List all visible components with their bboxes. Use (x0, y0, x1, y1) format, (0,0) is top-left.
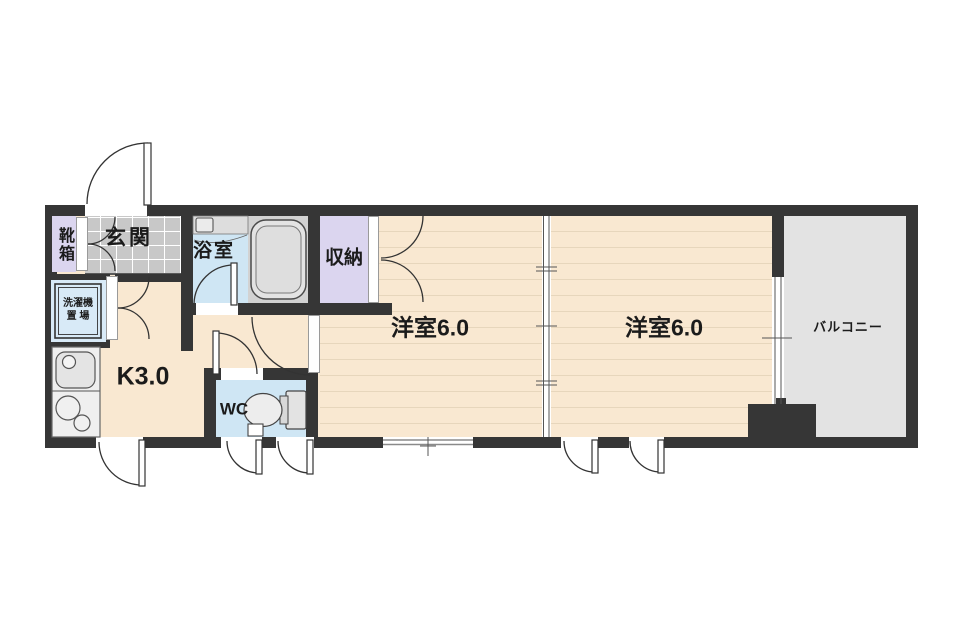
shoebox-label: 靴箱 (56, 227, 72, 263)
kitchen-label: K3.0 (117, 365, 170, 390)
balcony-label: バルコニー (813, 321, 883, 334)
wc-door-opening (221, 368, 263, 380)
wc-right-wall (306, 368, 318, 448)
bathroom-closet-wall (308, 216, 320, 315)
rooms-partition (542, 216, 551, 437)
genkan-label: 玄関 (105, 228, 153, 249)
outer-wall-right (906, 205, 918, 448)
balcony-window (772, 277, 784, 404)
balcony-window-frame-end (776, 398, 786, 406)
wc-label: WC (220, 401, 248, 418)
shoebox-door (76, 217, 88, 271)
closet-doors (368, 216, 379, 303)
balcony-pillar (748, 404, 816, 448)
floor-plan: 靴箱 玄関 洗濯機 置 場 浴室 収納 K3.0 WC 洋室6.0 洋室6.0 … (0, 0, 960, 629)
room1-label: 洋室6.0 (391, 317, 469, 340)
entrance-door (87, 143, 151, 205)
balcony-upper-wall (772, 216, 784, 277)
kitchen-room1-door (308, 315, 320, 373)
laundry-door (106, 276, 118, 340)
laundry-label: 洗濯機 置 場 (63, 297, 93, 323)
bathroom-left-wall (181, 205, 193, 351)
wc-bottom-opening-a (221, 437, 262, 448)
room2-label: 洋室6.0 (625, 317, 703, 340)
closet-label: 収納 (325, 249, 363, 268)
bathtub-panel (248, 216, 308, 303)
room1-window-opening (383, 437, 473, 448)
bathroom-door-opening (196, 303, 238, 315)
bathroom-label: 浴室 (193, 242, 235, 261)
genkan-bottom-wall (115, 274, 181, 282)
outer-wall-top (45, 205, 918, 216)
kitchen-bottom-opening (96, 437, 143, 448)
room2-bottom-opening-a (561, 437, 598, 448)
entrance-opening (85, 205, 147, 216)
wc-left-wall (204, 368, 216, 448)
room2-bottom-opening-b (629, 437, 664, 448)
wc-bottom-opening-b (276, 437, 314, 448)
